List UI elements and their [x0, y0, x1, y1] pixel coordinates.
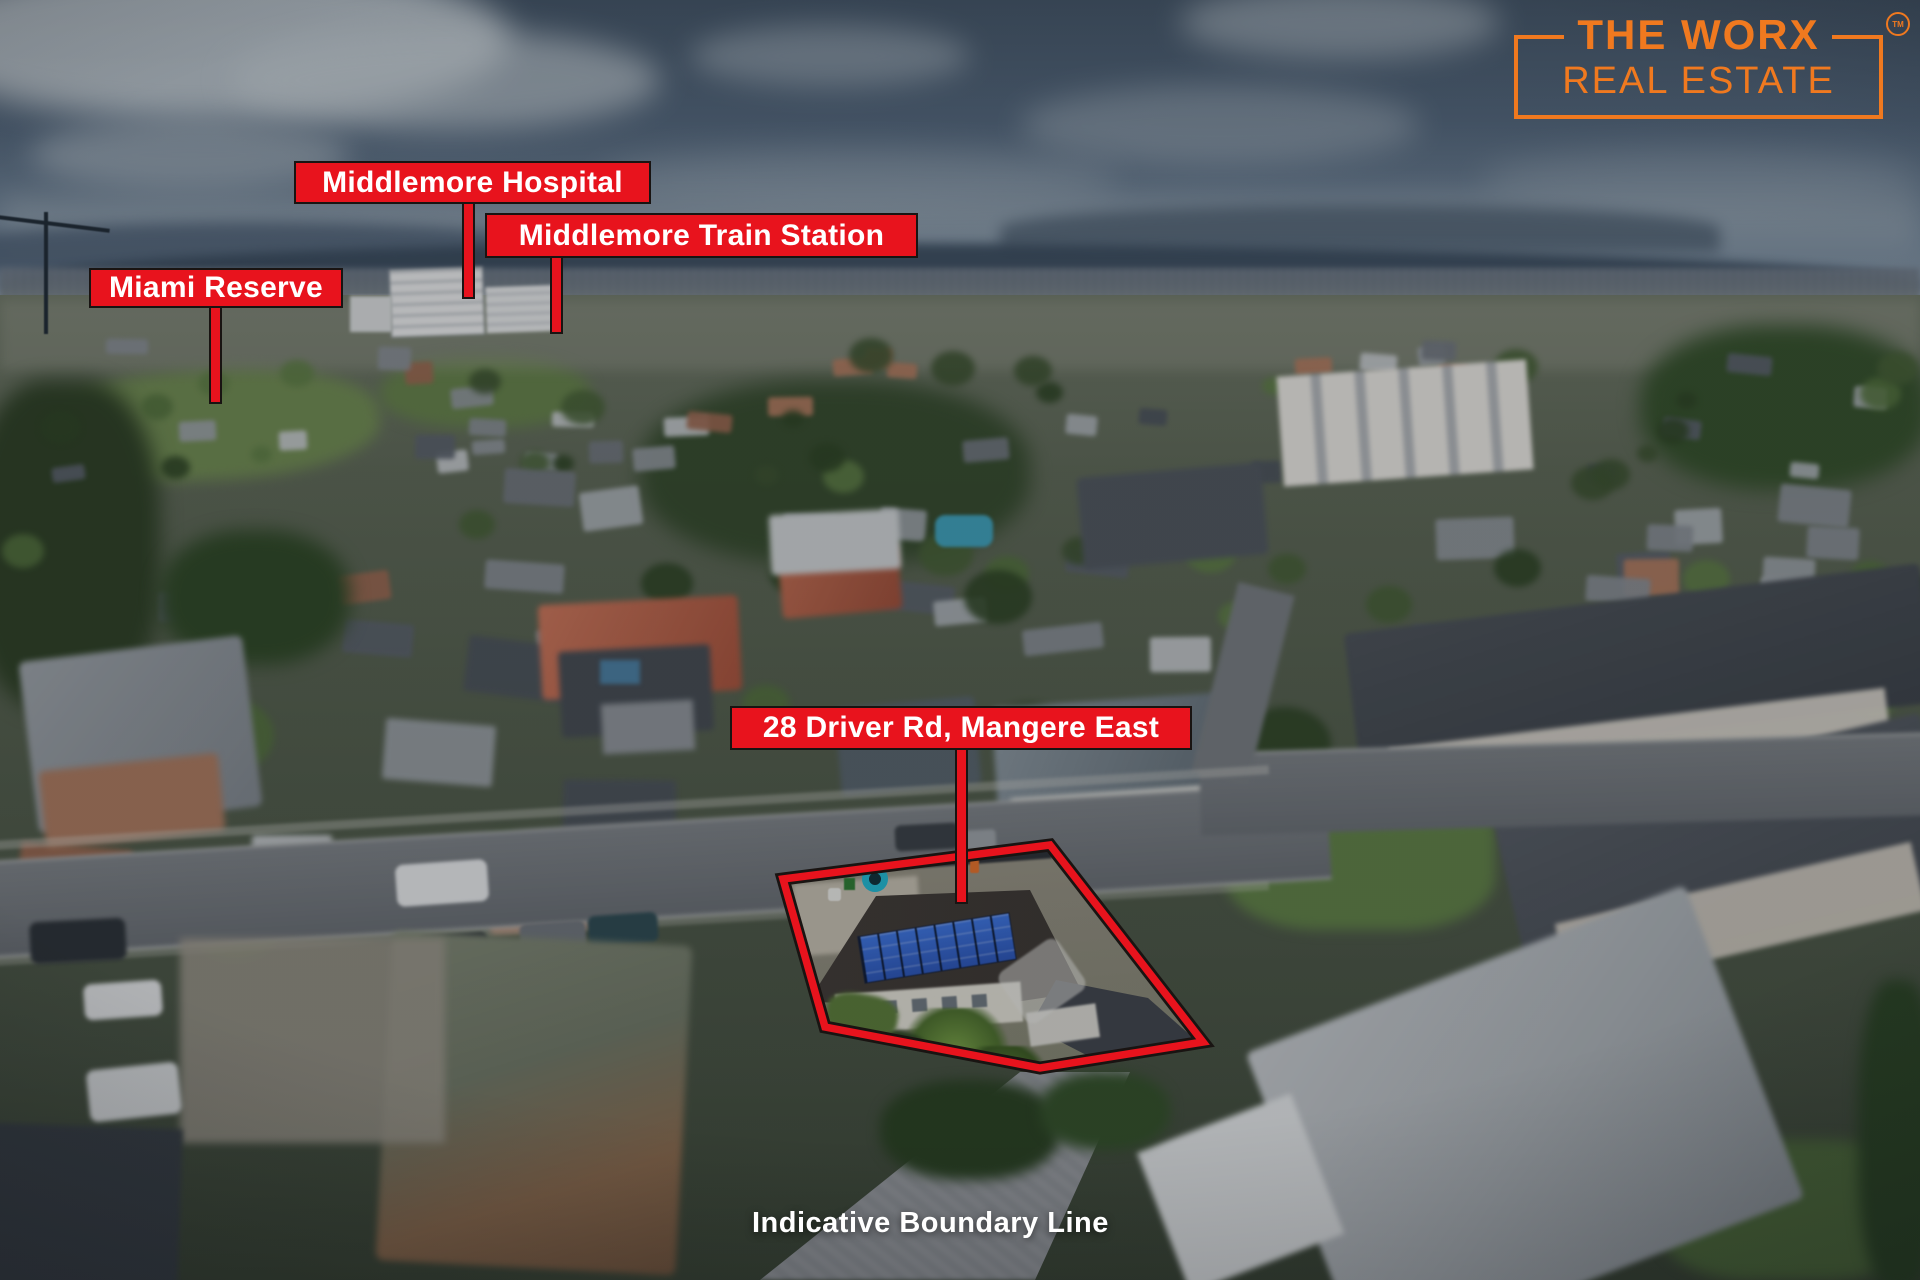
tree-blob: [2, 534, 44, 568]
roof-blob: [378, 346, 412, 370]
concrete-yard: [180, 938, 445, 1143]
aerial-marketing-image: Middlemore Hospital Middlemore Train Sta…: [0, 0, 1920, 1280]
foreground-trees: [880, 1080, 1060, 1180]
roof-blob: [279, 430, 308, 450]
roof-blob: [469, 418, 507, 437]
tree-blob: [469, 369, 501, 394]
roof-blob: [1726, 353, 1773, 376]
hedge: [1858, 980, 1920, 1280]
traffic-cone: [970, 858, 979, 873]
grey-shed: [601, 700, 695, 755]
tree-blob: [141, 394, 173, 420]
tree-blob: [1494, 549, 1541, 587]
tree-blob: [1036, 382, 1063, 403]
dark-metal-roof: [0, 1123, 183, 1280]
tree-blob: [849, 338, 893, 373]
callout-miami-reserve: Miami Reserve: [89, 268, 343, 308]
tree-blob: [1268, 554, 1306, 584]
tree-blob: [931, 351, 975, 386]
leader-line-hospital: [462, 200, 475, 299]
roof-blob: [503, 468, 576, 507]
callout-property-address: 28 Driver Rd, Mangere East: [730, 706, 1192, 750]
ute: [894, 822, 959, 851]
roof-blob: [589, 441, 624, 464]
blue-tarp: [600, 660, 640, 684]
leader-line-train-station: [550, 254, 563, 334]
tree-blob: [280, 360, 314, 387]
tree-blob: [41, 412, 80, 443]
roof-blob: [106, 339, 148, 355]
roof-blob: [962, 437, 1010, 463]
roof-blob: [179, 420, 217, 442]
hospital-building: [350, 296, 392, 332]
roof-blob: [1150, 637, 1211, 673]
roof-blob: [632, 445, 676, 472]
leader-line-reserve: [209, 304, 222, 404]
tree-blob: [1014, 356, 1052, 386]
white-bucket: [828, 888, 841, 901]
foreground-trees: [1040, 1072, 1170, 1150]
green-bin: [844, 878, 855, 890]
construction-crane: [44, 212, 48, 334]
tree-blob: [964, 570, 1032, 624]
roof-blob: [382, 718, 496, 787]
callout-middlemore-train-station: Middlemore Train Station: [485, 213, 918, 258]
white-van: [395, 859, 490, 907]
brand-logo: THE WORX REAL ESTATE TM: [1514, 12, 1883, 122]
tree-blob: [1637, 445, 1658, 462]
tree-blob: [561, 390, 605, 425]
roof-blob: [1777, 484, 1851, 529]
white-house-roof: [769, 509, 902, 576]
tree-blob: [1657, 418, 1689, 444]
tree-blob: [809, 443, 845, 472]
trademark-badge: TM: [1886, 12, 1910, 36]
tree-blob: [1571, 466, 1614, 500]
roof-blob: [484, 559, 565, 593]
roof-blob: [1022, 622, 1104, 657]
indicative-boundary-caption: Indicative Boundary Line: [752, 1207, 1109, 1240]
tree-blob: [1366, 586, 1412, 623]
callout-middlemore-hospital: Middlemore Hospital: [294, 161, 651, 204]
white-minibus: [86, 1061, 183, 1122]
pool-pipe-coil: [862, 866, 888, 892]
roof-blob: [579, 485, 644, 532]
roof-blob: [1789, 462, 1819, 480]
tree-blob: [1877, 352, 1918, 385]
brand-name: THE WORX: [1514, 12, 1883, 58]
roof-blob: [1422, 340, 1457, 361]
white-car: [83, 979, 163, 1020]
tree-blob: [754, 465, 779, 485]
roof-blob: [1065, 414, 1098, 437]
roof-blob: [51, 464, 86, 483]
white-gable-rowhouses: [1276, 359, 1533, 486]
roof-blob: [1138, 408, 1167, 426]
tree-blob: [1676, 392, 1697, 409]
swimming-pool: [935, 515, 993, 547]
leader-line-property: [955, 746, 968, 904]
roof-blob: [1806, 526, 1860, 561]
roof-blob: [1647, 524, 1694, 552]
dark-suv: [29, 918, 127, 965]
tree-blob: [459, 510, 495, 539]
grey-roof: [1076, 462, 1268, 570]
roof-blob: [342, 619, 415, 658]
tree-blob: [552, 455, 574, 472]
roof-blob: [415, 435, 455, 459]
tree-blob: [251, 446, 272, 463]
brand-tagline: REAL ESTATE: [1514, 60, 1883, 102]
tree-blob: [161, 456, 190, 479]
tree-blob: [782, 410, 804, 427]
roof-blob: [472, 439, 506, 455]
